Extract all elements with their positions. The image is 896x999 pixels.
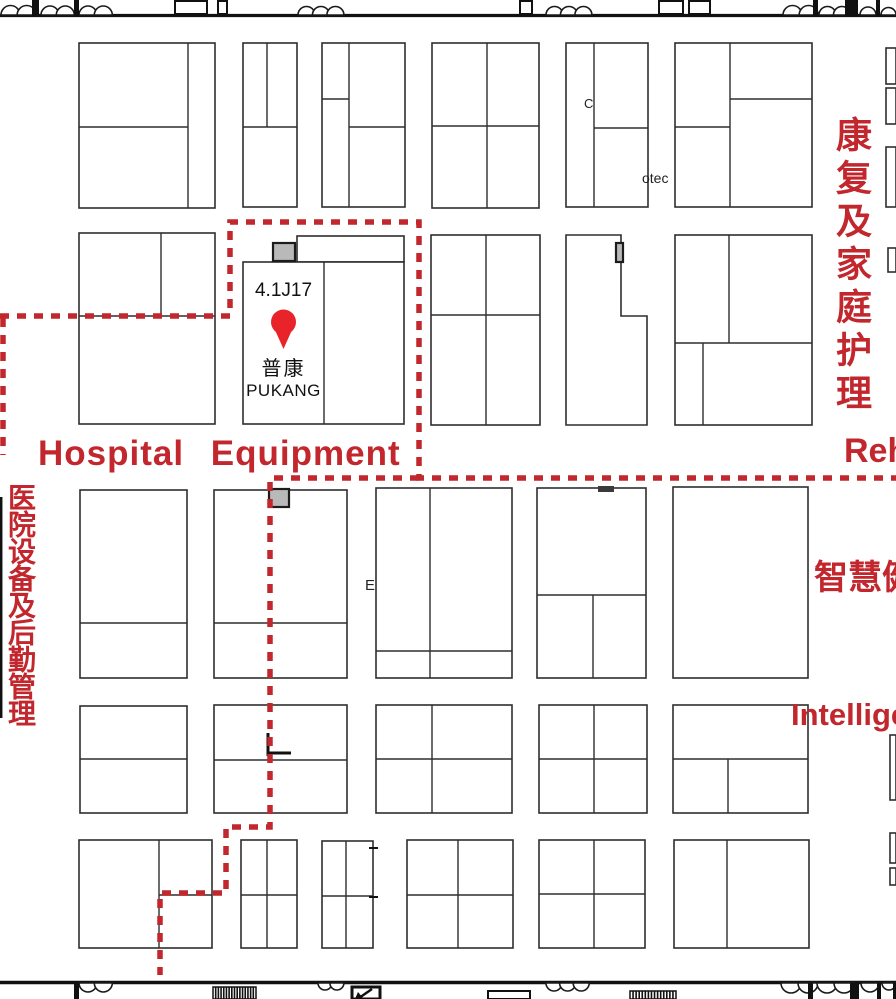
door-frame (218, 1, 227, 14)
floor-object (488, 991, 530, 999)
plant-scallop-icon (56, 6, 74, 15)
door-frame (659, 1, 683, 14)
exhibition-floor-plan: Hospital Equipment Reh 康复及家庭护理 医院设备及后勤管理… (0, 0, 896, 999)
plant-scallop-icon (94, 983, 112, 992)
service-box (273, 243, 295, 261)
zone-label-smart-health-cn: 智慧健 (814, 561, 896, 595)
booth-text-otec: otec (642, 171, 668, 185)
plant-scallop-icon (860, 7, 876, 15)
booth-outline (886, 147, 896, 207)
wall-post (845, 0, 858, 16)
booth-outline (673, 487, 808, 678)
location-pin-icon (271, 310, 296, 335)
booth-outline (537, 488, 646, 678)
wall-post (74, 983, 79, 999)
booth-outline (214, 490, 347, 678)
booth-outline (674, 840, 809, 948)
booth-outline (79, 233, 215, 424)
booth-outline (376, 488, 512, 678)
booth-outline (79, 840, 212, 948)
booth-outline (297, 236, 404, 262)
service-strip (598, 486, 614, 492)
booth-outline (214, 705, 347, 813)
wall-post (877, 983, 881, 999)
plant-scallop-icon (330, 983, 344, 990)
booth-outline (890, 833, 896, 863)
highlight-booth-name-cn: 普康 (243, 352, 324, 381)
highlight-booth-number: 4.1J17 (243, 280, 324, 302)
door-frame (689, 1, 710, 14)
door-frame (175, 1, 207, 14)
wall-post (876, 0, 880, 16)
zone-label-hospital-logistics-cn: 医院设备及后勤管理 (6, 483, 34, 726)
wall-post (74, 0, 79, 16)
booth-outline (890, 868, 896, 885)
booth-outline (407, 840, 513, 948)
wall-post (808, 983, 813, 999)
booth-outline (888, 248, 896, 272)
plant-scallop-icon (861, 983, 879, 992)
wall-post (32, 0, 39, 16)
plant-scallop-icon (881, 8, 896, 16)
stray-letter-e: E (365, 578, 375, 593)
booth-outline (243, 43, 297, 207)
booth-outline (675, 43, 812, 207)
highlight-booth-name-en: PUKANG (243, 381, 324, 401)
booth-outline-l-shape (566, 235, 647, 425)
wall-post (850, 983, 859, 999)
plant-scallop-icon (94, 6, 112, 15)
booth-outline (886, 48, 896, 84)
zone-label-hospital-equipment: Hospital Equipment (38, 436, 401, 471)
booth-outline (322, 43, 405, 207)
zone-label-intelligent-en: Intellige (791, 699, 896, 730)
booth-outline (886, 88, 896, 124)
booth-outline (241, 840, 297, 948)
booth-outline (80, 490, 187, 678)
stray-letter-c: C (584, 97, 593, 110)
plant-scallop-icon (573, 983, 589, 991)
zone-label-rehabilitation-cn: 康复及家庭护理 (833, 116, 869, 417)
zone-label-rehabilitation-en: Reh (844, 434, 896, 468)
booth-outline (675, 235, 812, 425)
booth-outline (322, 841, 373, 948)
wall-post (813, 0, 818, 16)
door-frame (520, 1, 532, 14)
plant-scallop-icon (575, 7, 592, 16)
booth-outline (890, 735, 896, 800)
floor-plan-canvas (0, 0, 896, 999)
service-box (616, 243, 623, 262)
booth-outline (79, 43, 215, 208)
plant-scallop-icon (327, 7, 344, 16)
booth-outline (566, 43, 648, 207)
